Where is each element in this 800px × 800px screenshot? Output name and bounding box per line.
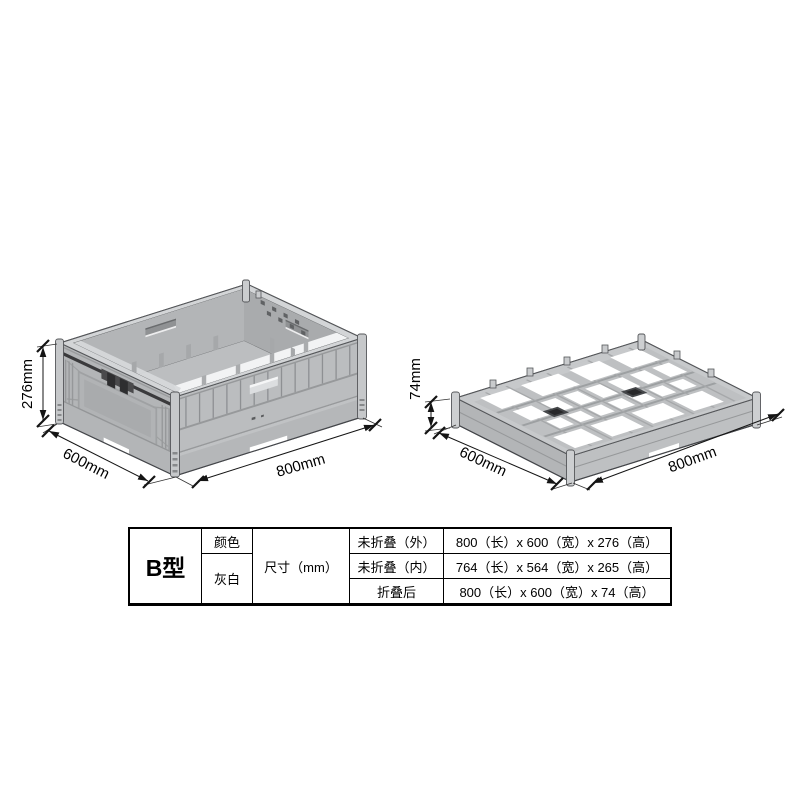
spec-value-cell: 800（长）x 600（宽）x 74（高） [444, 579, 672, 605]
product-technical-drawing: 276mm 600mm 800mm [0, 0, 800, 800]
folded-crate-drawing: 74mm 600mm 800mm [407, 334, 784, 490]
dim-label-width: 600mm [60, 445, 112, 483]
corner-post [56, 339, 64, 424]
table-row: 灰白 未折叠（内） 764（长）x 564（宽）x 265（高） [129, 554, 671, 579]
page: 276mm 600mm 800mm [0, 0, 800, 800]
dim-label-height: 74mm [407, 358, 424, 400]
spec-size-label-cell: 尺寸（mm） [253, 528, 350, 605]
spec-state-cell: 未折叠（外） [350, 528, 444, 554]
spec-color-label-cell: 颜色 [202, 528, 253, 554]
corner-post [243, 280, 250, 302]
spec-color-value-cell: 灰白 [202, 554, 253, 605]
spec-value-cell: 800（长）x 600（宽）x 276（高） [444, 528, 672, 554]
unfolded-crate-drawing: 276mm 600mm 800mm [19, 280, 382, 488]
dim-label-length: 800mm [274, 451, 327, 481]
corner-post [358, 334, 367, 419]
spec-model-cell: B型 [129, 528, 202, 605]
spec-state-cell: 折叠后 [350, 579, 444, 605]
spec-value-cell: 764（长）x 564（宽）x 265（高） [444, 554, 672, 579]
dim-label-height: 276mm [19, 359, 36, 409]
spec-state-cell: 未折叠（内） [350, 554, 444, 579]
table-row: B型 颜色 尺寸（mm） 未折叠（外） 800（长）x 600（宽）x 276（… [129, 528, 671, 554]
spec-table: B型 颜色 尺寸（mm） 未折叠（外） 800（长）x 600（宽）x 276（… [128, 527, 672, 606]
dim-label-width: 600mm [457, 444, 510, 481]
